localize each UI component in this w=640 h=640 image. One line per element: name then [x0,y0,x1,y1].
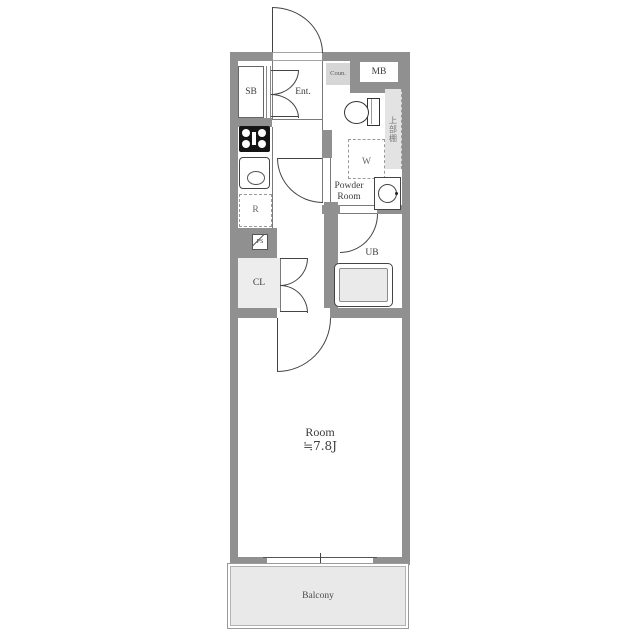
stove-grill [252,132,256,145]
upper-shelf-strip: 上部棚 [385,89,402,169]
entrance-threshold [273,52,322,61]
room-label: Room ≒7.8J [240,424,400,456]
counter-label: Coun. [326,63,350,85]
pipe-space-label: PS [252,234,268,250]
unit-bath-label: UB [356,246,388,260]
refrigerator-label: R [239,194,272,227]
powder-room-line1: Powder [334,181,363,192]
room-top-wall-left [230,308,277,318]
closet-door-upper-leaf [280,258,307,259]
stove-burner [242,140,250,148]
shoe-box-label: SB [238,66,264,118]
entrance-label: Ent. [283,84,323,100]
washer-label: W [348,145,385,179]
shoe-box-door-lower-leaf [271,116,298,117]
bathtub-inner [339,268,388,302]
room-door-arc [277,318,331,372]
bath-doorframe [340,205,377,214]
powder-bath-wall-left [322,205,340,214]
kitchen-sink-icon [239,157,270,189]
room-door-leaf [277,318,278,371]
room-name: Room [305,426,334,440]
toilet-bowl [344,101,369,124]
closet-door-lower-leaf [280,311,307,312]
closet-door-upper-arc [280,258,308,286]
toilet-tank-line [371,99,372,124]
room-size: ≒7.8J [303,440,337,454]
balcony-label: Balcony [302,591,334,601]
upper-shelf-label: 上部棚 [388,116,399,143]
floorplan-canvas: SB Ent. Coun. MB R PS CL 上部棚 W Powder Ro… [0,0,640,640]
top-wall-left [230,52,273,61]
meter-box-label: MB [360,62,398,82]
closet-label: CL [238,258,280,308]
closet-door-lower-arc [280,285,308,313]
hallway-door-leaf [277,158,322,159]
bathtub-icon [334,263,393,307]
shoe-box-door-upper-leaf [271,70,298,71]
powder-room-line2: Room [337,192,360,203]
entrance-door-arc [272,7,323,53]
powder-room-label: Powder Room [322,178,376,206]
balcony-area: Balcony [227,563,409,629]
stove-burner [242,129,250,137]
entrance-door-leaf [272,7,273,52]
room-top-wall-right [330,308,410,318]
hallway-door-arc [277,158,323,203]
washbasin-faucet [395,192,398,195]
hall-powder-wall-upper [322,130,332,158]
washbasin-icon [374,177,401,210]
stove-burner [258,129,266,137]
sink-basin [247,171,265,185]
corridor-left-line-lower [272,127,273,228]
balcony-floor: Balcony [230,566,406,626]
toilet-icon [343,97,383,127]
stove-burner [258,140,266,148]
gas-stove-icon [239,126,270,152]
entry-step-line [272,119,322,120]
